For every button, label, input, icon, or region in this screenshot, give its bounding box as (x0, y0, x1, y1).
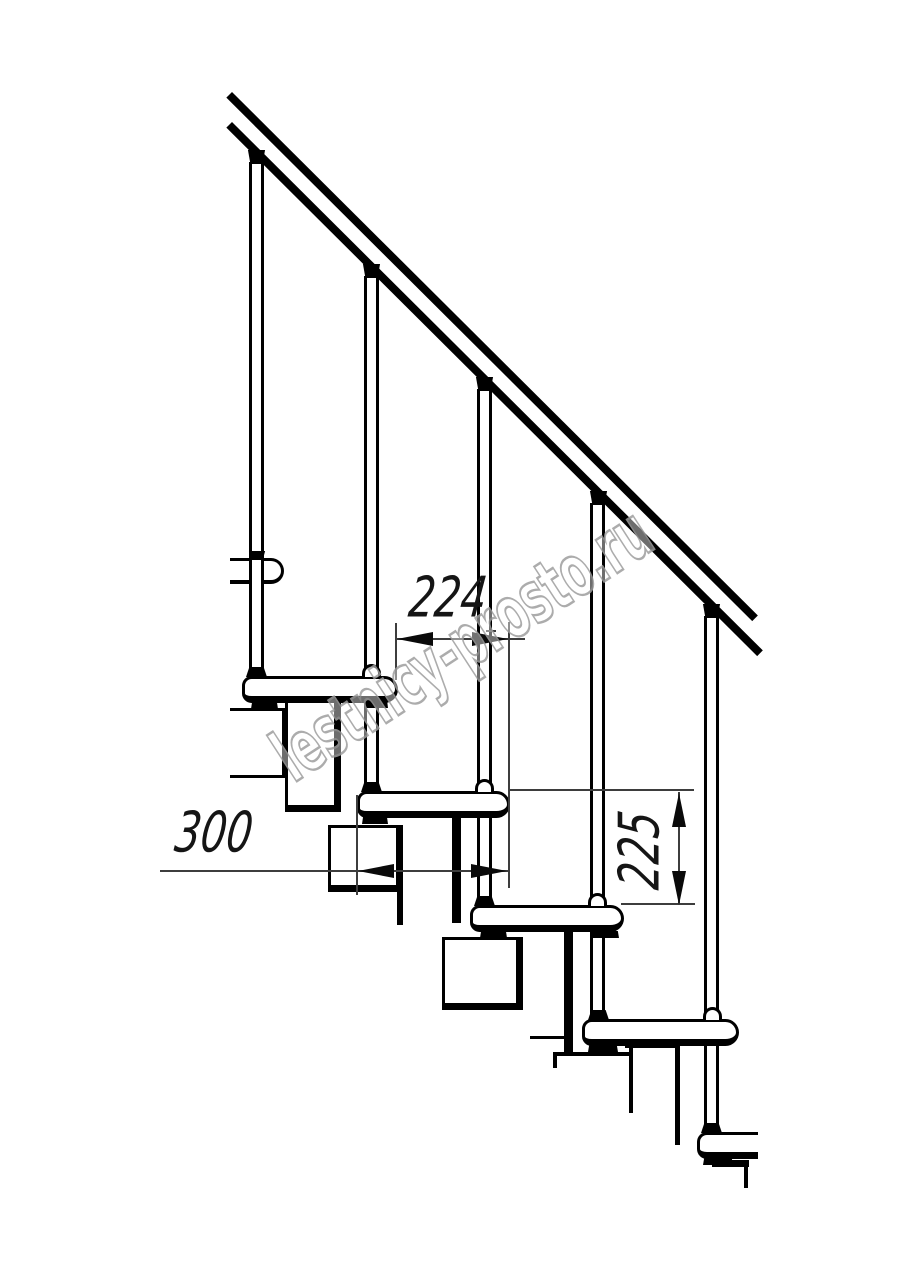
tread-4-mount-tab (588, 1045, 618, 1052)
module-plate-3-hook (553, 1055, 557, 1068)
dim-225-ext-top (510, 789, 694, 791)
tread-3 (470, 905, 624, 932)
baluster-5-foot (701, 1123, 722, 1133)
module-plate-3-arm-right (553, 1052, 633, 1056)
dim-300-ext-left (356, 795, 358, 895)
baluster-5 (704, 616, 719, 1133)
tread-4-post-collar (703, 1007, 722, 1020)
baluster-4-foot (588, 1010, 609, 1020)
baluster-1-foot (246, 667, 267, 677)
dim-225-label: 225 (608, 808, 673, 893)
tread-3-mount-tab-b (590, 931, 619, 938)
tread-3-mount-tab-a (480, 931, 507, 938)
module-box-2 (328, 825, 403, 892)
tread-2-post-collar (475, 779, 494, 792)
staircase-drawing: 224 300 225 lestnicy-prosto.ru (0, 0, 914, 1280)
dim-225-arrow-up (672, 793, 686, 827)
baluster-2-foot (361, 782, 382, 792)
tread-1-mount-tab-a (251, 702, 278, 709)
tread-2 (357, 791, 510, 818)
module-cut-line-b (675, 1040, 680, 1145)
tread-3-post-collar (588, 893, 607, 906)
dim-300-arrow-right (471, 864, 507, 878)
dim-225-arrow-down (672, 871, 686, 905)
floor-bracket-leg (744, 1166, 748, 1188)
tread-4 (582, 1019, 739, 1046)
dim-300-line (160, 870, 508, 872)
baluster-1 (249, 162, 264, 677)
handrail-top-line (226, 92, 758, 621)
dim-300-label: 300 (172, 801, 257, 866)
module-cut-line-a (629, 1048, 633, 1113)
module-plate-3-arm-left (530, 1036, 566, 1039)
module-plate-3 (564, 927, 573, 1054)
dim-300-arrow-left (358, 864, 394, 878)
tread-2-mount-tab (362, 817, 388, 824)
baluster-3-foot (474, 896, 495, 906)
module-box-2-extension (397, 890, 403, 925)
tread-5-mount-tab (703, 1158, 733, 1165)
tread-5-cut (697, 1132, 758, 1159)
module-box-3 (442, 937, 523, 1010)
